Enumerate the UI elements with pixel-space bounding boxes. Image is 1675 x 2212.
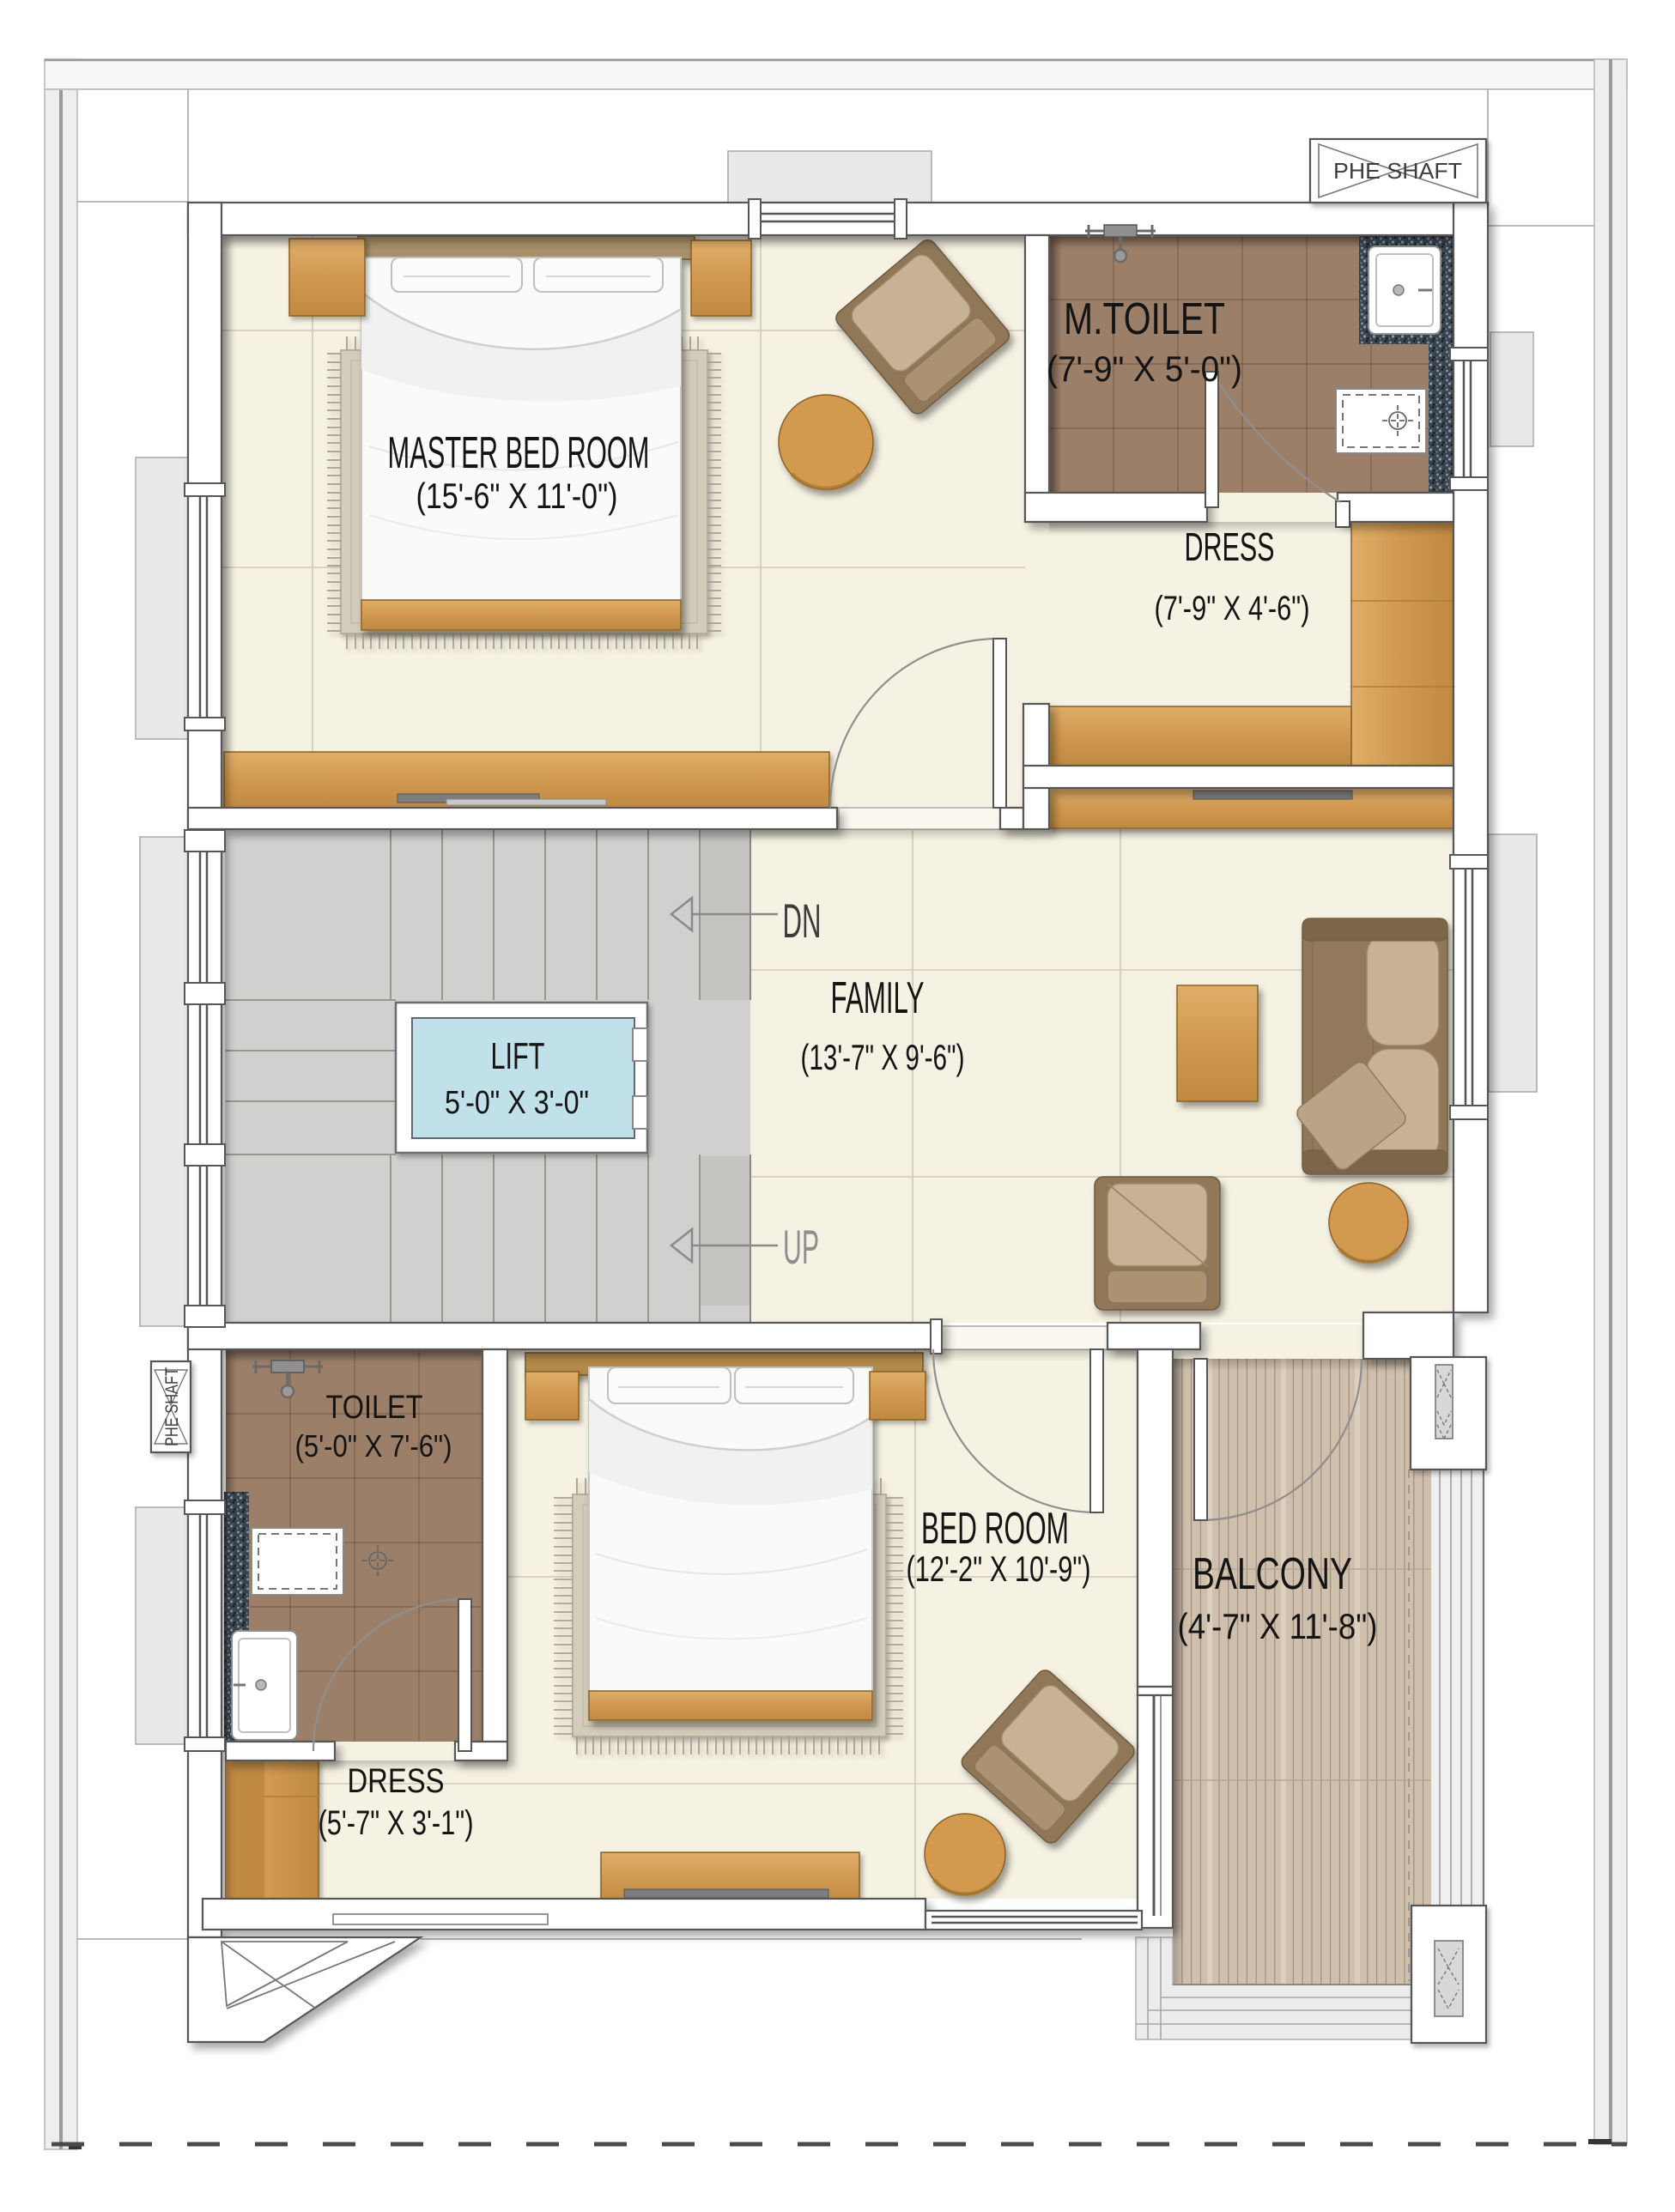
- svg-text:LIFT: LIFT: [491, 1035, 545, 1077]
- svg-text:(13'-7" X 9'-6"): (13'-7" X 9'-6"): [801, 1037, 965, 1077]
- svg-text:DRESS: DRESS: [1185, 524, 1275, 569]
- svg-text:(7'-9" X 4'-6"): (7'-9" X 4'-6"): [1155, 590, 1310, 627]
- svg-text:(12'-2" X 10'-9"): (12'-2" X 10'-9"): [907, 1548, 1091, 1589]
- svg-text:(5'-7" X 3'-1"): (5'-7" X 3'-1"): [319, 1804, 474, 1842]
- svg-text:UP: UP: [783, 1220, 819, 1274]
- svg-text:DRESS: DRESS: [348, 1762, 445, 1800]
- svg-text:PHE SHAFT: PHE SHAFT: [1333, 158, 1462, 184]
- svg-text:M.TOILET: M.TOILET: [1064, 294, 1225, 344]
- svg-text:5'-0" X 3'-0": 5'-0" X 3'-0": [445, 1085, 589, 1121]
- svg-text:FAMILY: FAMILY: [831, 973, 925, 1023]
- svg-text:MASTER BED ROOM: MASTER BED ROOM: [388, 428, 650, 478]
- svg-text:PHE SHAFT: PHE SHAFT: [162, 1367, 182, 1446]
- svg-text:BALCONY: BALCONY: [1193, 1549, 1352, 1599]
- svg-text:BED ROOM: BED ROOM: [921, 1504, 1069, 1554]
- svg-text:(7'-9" X 5'-0"): (7'-9" X 5'-0"): [1047, 348, 1242, 389]
- svg-text:(4'-7" X 11'-8"): (4'-7" X 11'-8"): [1178, 1606, 1378, 1646]
- svg-text:(5'-0" X 7'-6"): (5'-0" X 7'-6"): [295, 1428, 452, 1464]
- svg-text:(15'-6" X 11'-0"): (15'-6" X 11'-0"): [416, 476, 618, 516]
- svg-text:TOILET: TOILET: [326, 1390, 423, 1426]
- svg-text:DN: DN: [783, 894, 822, 948]
